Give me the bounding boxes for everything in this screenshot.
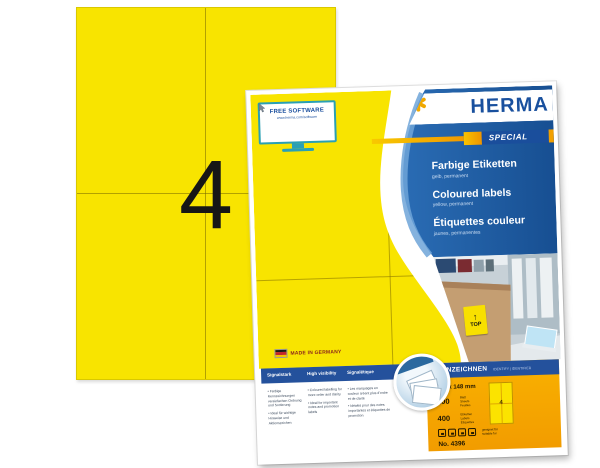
printer-note: geeignet für suitable for [482, 428, 498, 436]
mini-sheet-count: 4 [490, 383, 513, 424]
mini-sheet-preview: 4 [488, 382, 513, 425]
printer-compatibility-icons [438, 428, 476, 437]
germany-flag-icon [274, 349, 287, 358]
printer-icon [448, 429, 456, 437]
benefit-column-en: Coloured labelling for more order and cl… [308, 387, 347, 418]
special-badge: SPECIAL [482, 129, 554, 144]
labels-units: Etiketten Labels Étiquettes [460, 413, 474, 425]
printer-icon [438, 429, 446, 437]
brand-name: HERMA [470, 93, 549, 118]
title-de: Farbige Etiketten gelb, permanent [431, 156, 550, 179]
orange-nub [549, 129, 554, 142]
printer-icon [468, 428, 476, 436]
cursor-icon [258, 103, 266, 112]
benefit-column-fr: Les marquages en couleur créent plus d'o… [348, 386, 391, 422]
spec-header-sub: IDENTIFY | IDENTIFIER [493, 366, 531, 371]
free-software-promo: FREE SOFTWARE www.herma.com/software [258, 100, 338, 152]
benefit-header-de: Signalstark [267, 372, 291, 378]
orange-block [464, 132, 482, 146]
product-titles: Farbige Etiketten gelb, permanent Colour… [431, 156, 552, 245]
sheets-units: Blatt Sheets Feuilles [460, 396, 471, 408]
orange-line [372, 136, 464, 144]
sheet-count-number: 4 [174, 144, 238, 244]
printer-icon [458, 428, 466, 436]
title-en: Coloured labels yellow, permanent [432, 185, 551, 208]
product-packshot: 4 [0, 0, 600, 468]
logo-band: HERMA [408, 89, 553, 125]
benefit-header-en: High visibility [307, 370, 336, 376]
benefit-column-de: Farbige Kennzeichnungen vereinfachen Ord… [268, 388, 307, 429]
monitor-icon: FREE SOFTWARE www.herma.com/software [258, 100, 337, 144]
product-box: HERMA SPECIAL Farbige Etiketten gelb, pe… [246, 81, 568, 465]
box-front: HERMA SPECIAL Farbige Etiketten gelb, pe… [250, 85, 563, 460]
special-badge-label: SPECIAL [489, 132, 528, 142]
labels-count: 400 [437, 414, 450, 423]
article-number: No. 4396 [438, 440, 465, 448]
top-sticker: ↑ TOP [463, 305, 488, 336]
title-fr: Étiquettes couleur jaunes, permanentes [433, 214, 552, 237]
binder-blue [436, 258, 456, 273]
binder-red [458, 259, 472, 272]
benefit-header-fr: Signalétique [347, 369, 374, 375]
